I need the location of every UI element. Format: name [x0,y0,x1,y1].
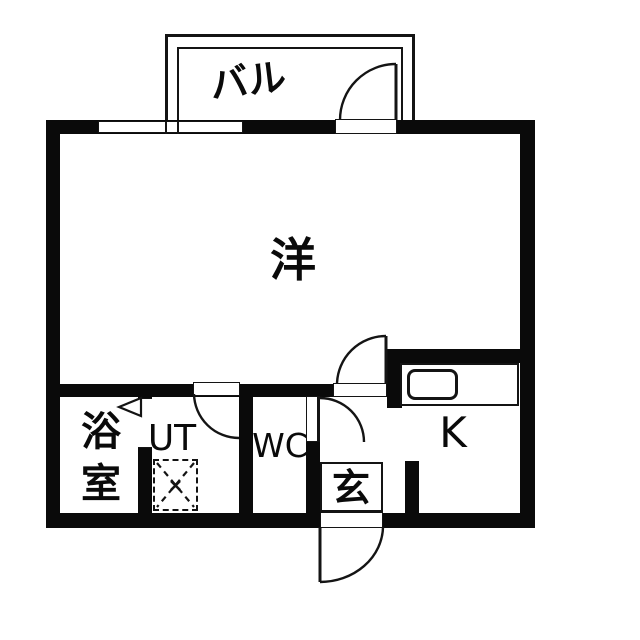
utility-door-swing-arc [194,394,239,438]
bathroom-label: 浴 室 [77,406,125,510]
living-room-door-swing-arc [337,336,386,384]
entrance-label: 玄 [331,469,371,507]
utility-label: UT [144,421,200,457]
washing-machine-center-mark [171,481,180,490]
kitchen-label: K [433,412,473,454]
bathroom-label-char-2: 室 [77,458,125,510]
western-room-label: 洋 [263,237,323,283]
balcony-door-swing-arc [340,64,396,120]
front-door-swing-arc [320,527,383,582]
balcony-label: バル [196,56,300,106]
toilet-door-swing-arc [320,398,364,442]
bathroom-label-char-1: 浴 [77,406,125,458]
floor-plan: バル 洋 浴 室 UT WC 玄 K [0,0,640,640]
toilet-label: WC [250,429,310,462]
